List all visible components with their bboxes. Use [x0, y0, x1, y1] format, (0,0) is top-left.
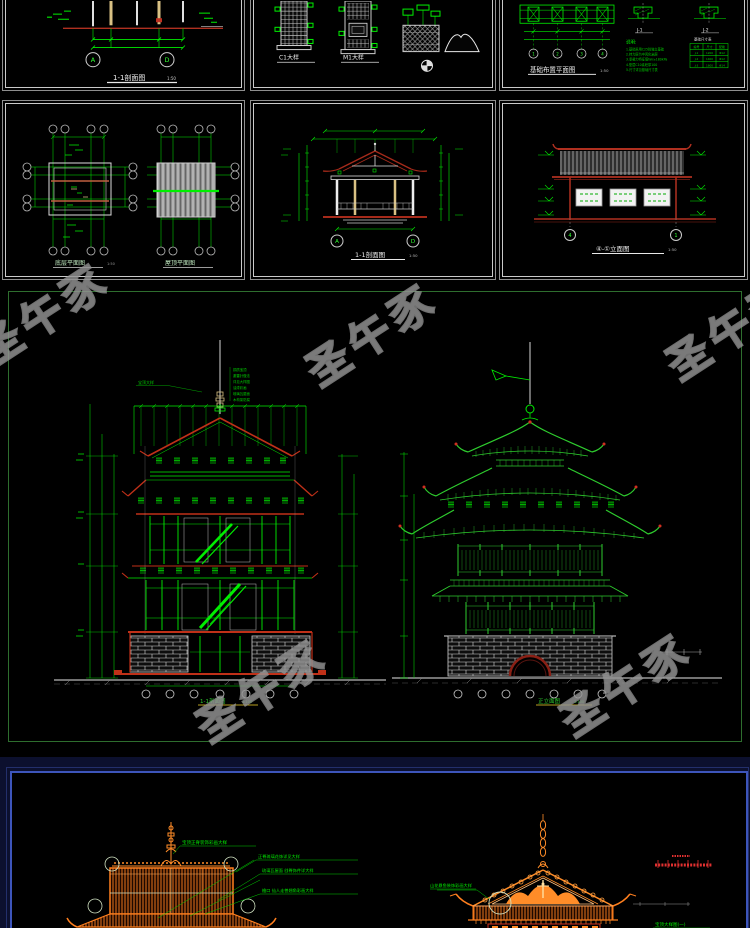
drawing-scale: 1:50 — [600, 68, 609, 73]
drawing-scale: 1:100 — [574, 700, 584, 704]
footing-detail-1 — [628, 3, 660, 23]
svg-text:A: A — [335, 239, 339, 245]
svg-text:J-3: J-3 — [694, 63, 699, 67]
mid-eave — [122, 566, 318, 578]
lower-storey — [466, 602, 594, 634]
drawing-scale: 1:50 — [668, 247, 677, 252]
columns — [93, 1, 183, 26]
steps — [343, 220, 407, 223]
bracket-row-1 — [156, 458, 286, 464]
third-roof — [399, 510, 662, 539]
drawing-title: 1-1剖面图 — [113, 73, 145, 82]
svg-text:详见大样图: 详见大样图 — [233, 379, 251, 384]
right-dimension-stack — [338, 454, 358, 678]
svg-text:J-1: J-1 — [694, 51, 699, 55]
pavilion-section-drawing: A D 1-1剖面图 1:50 — [255, 105, 491, 275]
svg-text:1600: 1600 — [706, 63, 713, 67]
upper-storey — [458, 544, 602, 576]
roof-node-detail — [403, 5, 440, 25]
pagoda-elevation-drawing: 正立面图 1:100 — [392, 334, 722, 706]
svg-text:1: 1 — [674, 233, 677, 239]
ground — [54, 680, 386, 685]
balcony — [432, 580, 628, 602]
railing — [337, 203, 413, 209]
drawing-title: 基础布置平面图 — [530, 65, 575, 74]
drawing-scale: 1:50 — [167, 76, 176, 81]
base-box — [488, 924, 600, 928]
drawing-scale: 1:50 — [107, 262, 115, 266]
detail-label: M1大样 — [343, 54, 364, 62]
svg-text:3.承载力特征值fak≥180kPa: 3.承载力特征值fak≥180kPa — [626, 57, 667, 62]
annotation-2: 琉璃瓦屋面 戗脊饰件详大样 — [262, 867, 314, 874]
roof-detail-front: 宝顶正脊装饰彩画大样 正脊琉璃花饰详见大样 琉璃瓦屋面 戗脊饰件详大样 檐口 仙… — [40, 780, 370, 928]
axis-label: D — [164, 56, 169, 64]
notes-block: 说明: 1.基础采用C25砼独立基础 2.持力层为中风化岩层 3.承载力特征值f… — [626, 38, 667, 71]
left-dimension-stack — [76, 404, 118, 678]
dim-marks — [633, 902, 690, 906]
dimension-lines — [91, 37, 185, 49]
footing-detail-2 — [694, 3, 726, 23]
section-detail-drawing: A D 1-1剖面图 1:50 — [7, 1, 240, 86]
axis-bubbles-left-plan — [23, 125, 137, 255]
roof — [323, 143, 427, 174]
drawing-title: 底层平面图 — [55, 259, 85, 267]
plans-drawing: 底层平面图 1:50 屋顶平面图 — [7, 105, 240, 275]
platform — [114, 632, 326, 674]
ground — [392, 678, 722, 683]
platform — [444, 636, 616, 676]
spire — [166, 822, 176, 864]
svg-text:铜质宝顶: 铜质宝顶 — [233, 367, 247, 372]
svg-text:1: 1 — [532, 51, 535, 56]
left-dimension-stack — [400, 452, 414, 678]
panel-elevation: 4 1 ④-①立面图 1:50 — [499, 100, 748, 280]
axis-label: A — [91, 56, 96, 64]
detail-label: J-2 — [702, 27, 709, 33]
right-dim-marks — [660, 649, 702, 655]
svg-text:Φ12: Φ12 — [719, 57, 725, 61]
pagoda-section-drawing: 铜质宝顶 避雷针做法 详见大样图 油漆彩画 琉璃瓦屋面 木构架防腐 宝顶大样 — [50, 334, 390, 706]
bracket-row-2 — [138, 498, 304, 504]
svg-text:配筋: 配筋 — [719, 44, 725, 49]
size-table: 基础尺寸表 编号 尺寸 配筋 J-1 1200 Φ12 J-2 1400 Φ12… — [690, 36, 728, 67]
pennant — [492, 370, 530, 380]
drawing-scale: 1:50 — [409, 253, 418, 258]
axis-bubbles: 1 2 3 4 — [529, 49, 607, 58]
bracket-row — [448, 502, 614, 508]
drawing-title: 屋顶平面图 — [165, 260, 195, 267]
annotation-1: 正脊琉璃花饰详见大样 — [258, 853, 300, 860]
red-beam-lines — [51, 181, 109, 201]
north-symbol — [422, 60, 433, 71]
bottom-sheet: 宝顶正脊装饰彩画大样 正脊琉璃花饰详见大样 琉璃瓦屋面 戗脊饰件详大样 檐口 仙… — [0, 757, 750, 928]
drawing-title: ④-①立面图 — [596, 244, 630, 253]
top-roof — [140, 418, 300, 458]
pediment — [492, 878, 594, 904]
roof-body — [110, 868, 233, 914]
annotation-3: 檐口 仙人走兽翘角彩画大样 — [262, 887, 314, 894]
detail-label: C1大样 — [279, 54, 299, 62]
column-details-drawing: C1大样 M1大样 — [255, 1, 491, 86]
top-roof — [455, 420, 606, 457]
svg-text:4: 4 — [568, 233, 571, 239]
detail-label: J-1 — [636, 27, 643, 33]
dimension-lines — [281, 129, 463, 221]
plan-annotations — [63, 145, 88, 237]
drawing-title: 1-1剖面图 — [200, 697, 226, 705]
svg-text:J-2: J-2 — [694, 57, 699, 61]
chain-spire — [538, 814, 548, 868]
svg-text:D: D — [411, 239, 415, 245]
roof — [552, 144, 692, 180]
axis-bubble-row — [142, 690, 298, 698]
columns — [337, 180, 413, 215]
lower-body — [146, 580, 294, 630]
beam — [331, 176, 419, 180]
foundation-plan-drawing: 1 2 3 4 基础布置平面图 1:50 J-1 — [504, 1, 743, 86]
svg-text:1400: 1400 — [706, 57, 713, 61]
svg-text:基础尺寸表: 基础尺寸表 — [694, 36, 712, 41]
panel-pavilion-section: A D 1-1剖面图 1:50 — [250, 100, 496, 280]
panel-foundation-plan: 1 2 3 4 基础布置平面图 1:50 J-1 — [499, 0, 748, 91]
svg-text:Φ12: Φ12 — [719, 51, 725, 55]
svg-text:5.尺寸详见基础尺寸表: 5.尺寸详见基础尺寸表 — [626, 67, 658, 72]
green-annotations — [47, 11, 217, 22]
mound-shape — [445, 34, 479, 51]
second-roof — [122, 480, 318, 496]
spire-note: 宝顶大样 — [138, 379, 154, 385]
svg-text:油漆彩画: 油漆彩画 — [233, 385, 247, 390]
svg-text:尺寸: 尺寸 — [707, 44, 713, 49]
svg-text:1200: 1200 — [706, 51, 713, 55]
drawing-title: 1-1剖面图 — [355, 250, 385, 259]
svg-text:编号: 编号 — [694, 44, 700, 49]
annotation-top: 宝顶正脊装饰彩画大样 — [182, 839, 227, 846]
second-roof — [423, 468, 638, 501]
axis-bubble-row — [454, 690, 606, 698]
drawing-scale: 1:100 — [242, 700, 252, 704]
panel-section-detail: A D 1-1剖面图 1:50 — [2, 0, 245, 91]
svg-text:琉璃瓦屋面: 琉璃瓦屋面 — [233, 391, 251, 396]
windows — [576, 189, 670, 206]
elevation-drawing: 4 1 ④-①立面图 1:50 — [504, 105, 743, 275]
svg-text:说明:: 说明: — [626, 38, 636, 45]
svg-text:4.垫层C10素砼厚100: 4.垫层C10素砼厚100 — [626, 62, 657, 67]
collar-balustrade — [496, 460, 564, 466]
svg-text:避雷针做法: 避雷针做法 — [233, 373, 251, 378]
svg-text:木构架防腐: 木构架防腐 — [233, 397, 251, 402]
svg-text:1.基础采用C25砼独立基础: 1.基础采用C25砼独立基础 — [626, 47, 664, 52]
eave-flare — [77, 914, 266, 927]
panel-floor-roof-plans: 底层平面图 1:50 屋顶平面图 — [2, 100, 245, 280]
svg-text:2.持力层为中风化岩层: 2.持力层为中风化岩层 — [626, 52, 658, 57]
svg-text:3: 3 — [580, 51, 583, 56]
panel-column-details: C1大样 M1大样 — [250, 0, 496, 91]
red-note-marks — [655, 856, 712, 868]
callout-note: 山花悬鱼装饰彩画大样 — [430, 882, 472, 889]
bottom-right-note: 宝顶大样图(一) — [655, 921, 686, 928]
upper-body — [150, 516, 290, 564]
svg-text:Φ14: Φ14 — [719, 63, 725, 67]
grid-lines — [25, 127, 137, 255]
spec-text-block: 铜质宝顶 避雷针做法 详见大样图 油漆彩画 琉璃瓦屋面 木构架防腐 — [230, 367, 251, 402]
roof-detail-gable: 山花悬鱼装饰彩画大样 宝顶大样图(一) — [380, 780, 750, 928]
drawing-title: 正立面图 — [538, 697, 561, 705]
foundation-strip — [520, 5, 614, 49]
svg-text:4: 4 — [601, 51, 604, 56]
cad-drawing-collage: A D 1-1剖面图 1:50 C1大样 — [0, 0, 750, 928]
finial-ball — [526, 405, 534, 413]
svg-text:2: 2 — [556, 51, 559, 56]
